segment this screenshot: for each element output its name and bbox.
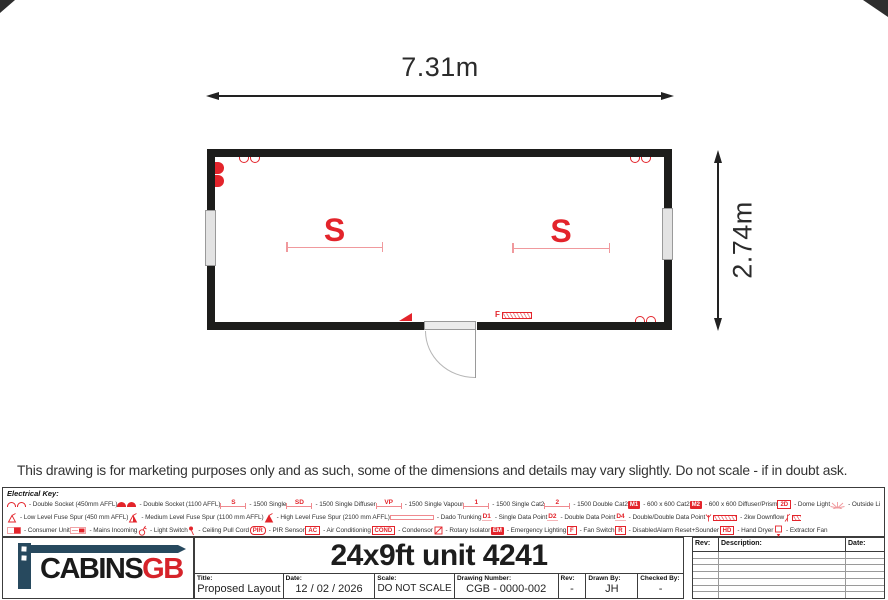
door-frame bbox=[424, 321, 476, 330]
socket-filled-icon bbox=[117, 502, 136, 507]
box-filled-icon: EM bbox=[491, 527, 504, 535]
key-item-label: - Ceiling Pull Cord bbox=[198, 527, 249, 534]
rev-table-row bbox=[693, 572, 884, 579]
height-dimension-arrow bbox=[714, 150, 722, 331]
pullcord-icon bbox=[188, 526, 195, 536]
key-item-label: - Fan Switch bbox=[580, 527, 615, 534]
window-right bbox=[662, 208, 673, 260]
key-item-label: - Medium Level Fuse Spur (1100 mm AFFL) bbox=[141, 514, 263, 521]
text-red-icon: D2 bbox=[547, 514, 557, 522]
key-item-hand-dryer: HD- Hand Dryer bbox=[720, 526, 774, 535]
page-corner-mark bbox=[0, 0, 15, 13]
drawing-title: 24x9ft unit 4241 bbox=[195, 539, 683, 573]
width-dimension-arrow bbox=[206, 92, 674, 100]
key-item-high-level-fuse-spur-2100-mm-affl: - High Level Fuse Spur (2100 mm AFFL) bbox=[264, 513, 390, 523]
spur-low-icon bbox=[7, 513, 17, 523]
key-item-light-switch: - Light Switch bbox=[138, 525, 188, 536]
convector-heater: F bbox=[495, 311, 532, 319]
double-socket-icon bbox=[630, 157, 651, 163]
key-item-label: - Hand Dryer bbox=[737, 527, 773, 534]
text-red-icon: D1 bbox=[482, 514, 492, 522]
strip-icon: 2 bbox=[544, 500, 570, 510]
window-left bbox=[205, 210, 216, 266]
key-item-condensor: COND- Condensor bbox=[372, 526, 433, 535]
key-item-emergency-lighting: EM- Emergency Lighting bbox=[491, 527, 566, 535]
box-outline-icon: R bbox=[615, 526, 625, 535]
key-item-label: - Consumer Unit bbox=[24, 527, 70, 534]
key-item-fan-switch: F- Fan Switch bbox=[567, 526, 615, 535]
key-item-2kw-convector: - 2kw Convector bbox=[784, 513, 801, 522]
key-item-label: - 2kw Downflow bbox=[740, 514, 784, 521]
key-item-label: - 1500 Single Cat2 bbox=[492, 501, 544, 508]
electrical-key-title: Electrical Key: bbox=[7, 489, 880, 498]
fan-switch-icon: F bbox=[495, 311, 500, 319]
convector-heater-icon bbox=[502, 312, 532, 319]
key-item-air-conditioning: AC- Air Conditioning bbox=[305, 526, 370, 535]
key-item-label: - Emergency Lighting bbox=[507, 527, 566, 534]
key-item-single-data-point: D1- Single Data Point bbox=[482, 514, 548, 522]
logo-box: CABINSGB bbox=[2, 537, 194, 599]
revision-table: Rev: Description: Date: bbox=[692, 537, 885, 599]
key-item-label: - Rotary Isolator bbox=[446, 527, 491, 534]
field-drawing-number: Drawing Number: CGB - 0000-002 bbox=[454, 574, 558, 598]
key-item-low-level-fuse-spur-450-mm-affl: - Low Level Fuse Spur (450 mm AFFL) bbox=[7, 513, 128, 523]
key-item-label: - Double Socket (1100 AFFL) bbox=[139, 501, 220, 508]
key-item-double-socket-1100-affl: - Double Socket (1100 AFFL) bbox=[117, 501, 220, 508]
key-item-double-socket-450mm-affl: - Double Socket (450mm AFFL) bbox=[7, 501, 117, 508]
key-item-label: - Single Data Point bbox=[495, 514, 547, 521]
light-switch-icon bbox=[399, 313, 412, 321]
key-item-label: - Dado Trunking bbox=[437, 514, 482, 521]
field-date: Date: 12 / 02 / 2026 bbox=[283, 574, 375, 598]
key-item-2kw-downflow: - 2kw Downflow bbox=[705, 513, 784, 522]
key-item-medium-level-fuse-spur-1100-mm-affl: - Medium Level Fuse Spur (1100 mm AFFL) bbox=[128, 513, 263, 523]
key-item-1500-double-cat2: 2- 1500 Double Cat2 bbox=[544, 500, 628, 510]
width-dimension-label: 7.31m bbox=[206, 52, 674, 83]
box-filled-icon: M1 bbox=[628, 501, 640, 509]
title-block-main: 24x9ft unit 4241 Title: Proposed Layout … bbox=[194, 537, 684, 599]
key-item-label: - High Level Fuse Spur (2100 mm AFFL) bbox=[277, 514, 390, 521]
switch-icon bbox=[138, 525, 147, 536]
socket-outline-icon bbox=[7, 502, 26, 507]
drawing-sheet: 7.31m 2.74m S S F This drawing is for ma… bbox=[0, 0, 888, 600]
spur-high-icon bbox=[264, 513, 274, 523]
key-item-label: - Mains Incoming bbox=[89, 527, 137, 534]
key-item-label: - 600 x 600 Cat2 bbox=[643, 501, 689, 508]
fan-icon bbox=[774, 525, 783, 537]
key-item-label: - Extractor Fan bbox=[786, 527, 828, 534]
key-item-disabledalarm-reset-sounder: R- DisabledAlarm Reset+Sounder bbox=[615, 526, 719, 535]
double-socket-icon bbox=[239, 157, 260, 163]
key-item-ceiling-pull-cord: - Ceiling Pull Cord bbox=[188, 526, 249, 536]
key-item-1500-single-diffuser: SD- 1500 Single Diffuser bbox=[286, 500, 375, 510]
strip-icon: 1 bbox=[463, 500, 489, 510]
key-item-label: - Double/Double Data Point bbox=[629, 514, 706, 521]
height-dimension-label: 2.74m bbox=[728, 201, 759, 279]
key-item-label: - Double Socket (450mm AFFL) bbox=[29, 501, 117, 508]
text-red-icon: D4 bbox=[615, 514, 625, 522]
key-item-label: - 1500 Single Vapour bbox=[405, 501, 464, 508]
strip-icon: SD bbox=[286, 500, 312, 510]
rev-table-row bbox=[693, 559, 884, 566]
box-outline-icon: COND bbox=[372, 526, 396, 535]
key-item-label: - Light Switch bbox=[150, 527, 188, 534]
key-item-1500-single: S- 1500 Single bbox=[220, 500, 286, 510]
disclaimer-text: This drawing is for marketing purposes o… bbox=[17, 463, 847, 478]
strip-icon: VP bbox=[376, 500, 402, 510]
key-item-double-double-data-point: D4- Double/Double Data Point bbox=[615, 514, 705, 522]
cabinsgb-logo-text: CABINSGB bbox=[40, 555, 183, 584]
door-leaf bbox=[475, 330, 476, 378]
title-block-fields: Title: Proposed Layout Date: 12 / 02 / 2… bbox=[195, 573, 683, 598]
key-row-0: - Double Socket (450mm AFFL)- Double Soc… bbox=[7, 498, 880, 511]
rotary-icon bbox=[434, 526, 443, 535]
key-item-label: - 1500 Single Diffuser bbox=[315, 501, 375, 508]
trunking-icon bbox=[390, 515, 434, 520]
field-title: Title: Proposed Layout bbox=[195, 574, 283, 598]
key-item-label: - 600 x 600 Diffuser/Prism bbox=[705, 501, 777, 508]
field-rev: Rev: - bbox=[558, 574, 586, 598]
mains-icon bbox=[70, 527, 86, 534]
key-item-label: - Outside Light bbox=[848, 501, 880, 508]
key-item-label: - Double Data Point bbox=[561, 514, 616, 521]
sun-icon bbox=[830, 500, 845, 509]
consumer-unit-icon bbox=[7, 527, 21, 534]
arrow-down-icon bbox=[714, 318, 722, 331]
key-item-1500-single-cat2: 1- 1500 Single Cat2 bbox=[463, 500, 544, 510]
key-item-pir-sensor: PIR- PIR Sensor bbox=[250, 526, 305, 535]
key-item-extractor-fan: - Extractor Fan bbox=[774, 525, 828, 537]
key-row-2: - Consumer Unit- Mains Incoming- Light S… bbox=[7, 524, 828, 537]
key-item-label: - DisabledAlarm Reset+Sounder bbox=[629, 527, 719, 534]
key-item-dado-trunking: - Dado Trunking bbox=[390, 514, 482, 521]
key-row-1: - Low Level Fuse Spur (450 mm AFFL)- Med… bbox=[7, 511, 801, 524]
key-item-600-x-600-diffuser-prism: M2- 600 x 600 Diffuser/Prism bbox=[690, 501, 778, 509]
box-outline-icon: AC bbox=[305, 526, 320, 535]
double-socket-icon bbox=[635, 316, 656, 322]
key-item-dome-light: 2D- Dome Light bbox=[777, 500, 830, 509]
key-item-label: - Low Level Fuse Spur (450 mm AFFL) bbox=[20, 514, 128, 521]
key-item-outside-light: - Outside Light bbox=[830, 500, 880, 509]
key-item-600-x-600-cat2: M1- 600 x 600 Cat2 bbox=[628, 501, 690, 509]
revision-table-header: Rev: Description: Date: bbox=[693, 538, 884, 552]
door-swing-arc bbox=[425, 331, 475, 378]
key-item-consumer-unit: - Consumer Unit bbox=[7, 527, 70, 534]
key-item-label: - PIR Sensor bbox=[269, 527, 305, 534]
key-item-mains-incoming: - Mains Incoming bbox=[70, 527, 137, 534]
page-corner-mark bbox=[863, 0, 888, 17]
field-scale: Scale: DO NOT SCALE bbox=[374, 574, 454, 598]
box-outline-icon: 2D bbox=[777, 500, 791, 509]
key-item-label: - Dome Light bbox=[794, 501, 830, 508]
key-item-label: - Condensor bbox=[398, 527, 433, 534]
key-item-label: - 1500 Double Cat2 bbox=[573, 501, 628, 508]
key-item-double-data-point: D2- Double Data Point bbox=[547, 514, 615, 522]
rev-table-row bbox=[693, 565, 884, 572]
strip-icon: S bbox=[220, 500, 246, 510]
key-item-rotary-isolator: - Rotary Isolator bbox=[434, 526, 491, 535]
light-label-2: S bbox=[512, 215, 610, 247]
field-checked-by: Checked By: - bbox=[637, 574, 683, 598]
box-filled-icon: M2 bbox=[690, 501, 702, 509]
key-item-1500-single-vapour: VP- 1500 Single Vapour bbox=[376, 500, 464, 510]
spur-med-icon bbox=[128, 513, 138, 523]
downflow-icon bbox=[705, 513, 737, 522]
rev-table-row bbox=[693, 579, 884, 586]
key-item-label: - 1500 Single bbox=[249, 501, 286, 508]
box-outline-icon: HD bbox=[720, 526, 735, 535]
electrical-key: Electrical Key: - Double Socket (450mm A… bbox=[2, 487, 885, 537]
box-outline-icon: F bbox=[567, 526, 577, 535]
field-drawn-by: Drawn By: JH bbox=[585, 574, 637, 598]
rev-table-row bbox=[693, 592, 884, 598]
convector-icon bbox=[784, 513, 801, 522]
key-item-label: - Air Conditioning bbox=[323, 527, 371, 534]
rev-table-row bbox=[693, 552, 884, 559]
arrow-right-icon bbox=[661, 92, 674, 100]
mains-incoming-icon bbox=[215, 162, 224, 188]
light-label-1: S bbox=[286, 214, 383, 246]
box-round-icon: PIR bbox=[250, 526, 266, 535]
rev-table-body bbox=[693, 552, 884, 598]
rev-table-row bbox=[693, 586, 884, 593]
